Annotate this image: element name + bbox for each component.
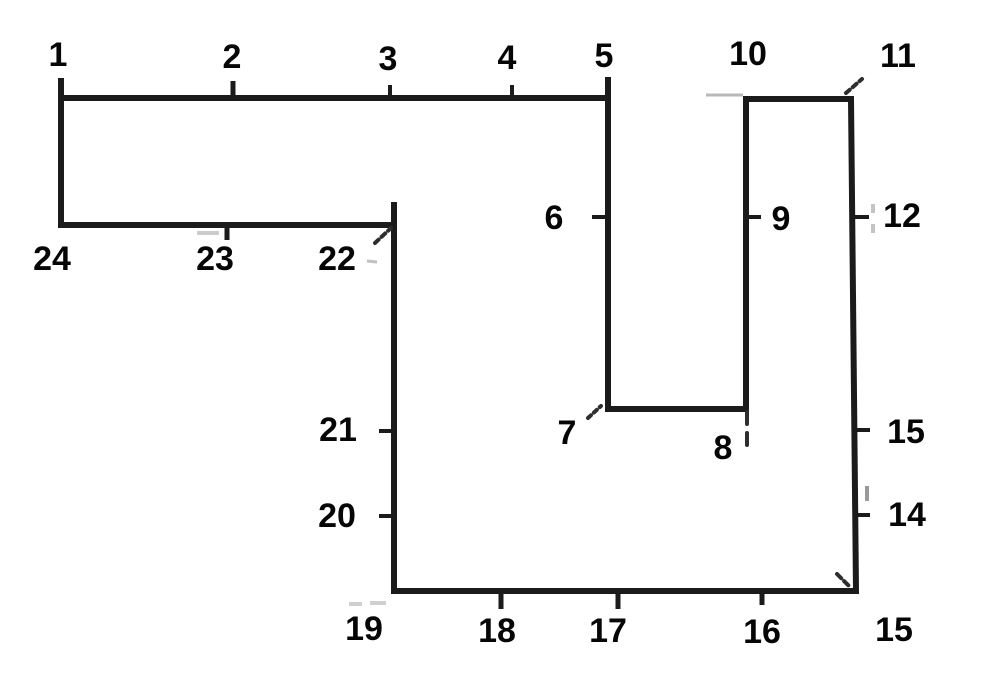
point-label-18: 18 <box>478 612 516 650</box>
point-label-1: 1 <box>49 36 68 74</box>
point-label-17: 17 <box>589 612 627 650</box>
point-label-19: 19 <box>345 610 383 648</box>
point-label-16: 16 <box>743 613 781 651</box>
point-label-14: 14 <box>888 496 926 534</box>
corner-dash-mark <box>375 228 391 243</box>
corner-dash-mark <box>837 574 851 588</box>
point-label-15-b: 15 <box>875 611 913 649</box>
point-label-2: 2 <box>223 38 242 76</box>
corner-dash-mark <box>846 79 862 93</box>
point-label-23: 23 <box>196 240 234 278</box>
erase-artifact <box>367 261 377 262</box>
point-label-10: 10 <box>729 35 767 73</box>
point-label-7: 7 <box>558 414 577 452</box>
point-label-5: 5 <box>595 37 614 75</box>
point-label-20: 20 <box>318 497 356 535</box>
point-label-8: 8 <box>714 429 733 467</box>
point-label-3: 3 <box>379 40 398 78</box>
point-label-9: 9 <box>772 200 791 238</box>
point-label-24: 24 <box>33 240 71 278</box>
point-label-22: 22 <box>318 240 356 278</box>
point-label-21: 21 <box>319 411 357 449</box>
shape-outline <box>61 98 856 591</box>
corner-dash-mark <box>588 406 601 418</box>
diagram-canvas: 123451011691224232221781520141918171615 <box>0 0 1000 698</box>
point-label-4: 4 <box>498 39 517 77</box>
point-label-12: 12 <box>883 197 921 235</box>
perimeter-diagram: 123451011691224232221781520141918171615 <box>0 0 1000 698</box>
point-label-15: 15 <box>887 413 925 451</box>
point-label-11: 11 <box>880 37 916 75</box>
point-label-6: 6 <box>545 199 564 237</box>
